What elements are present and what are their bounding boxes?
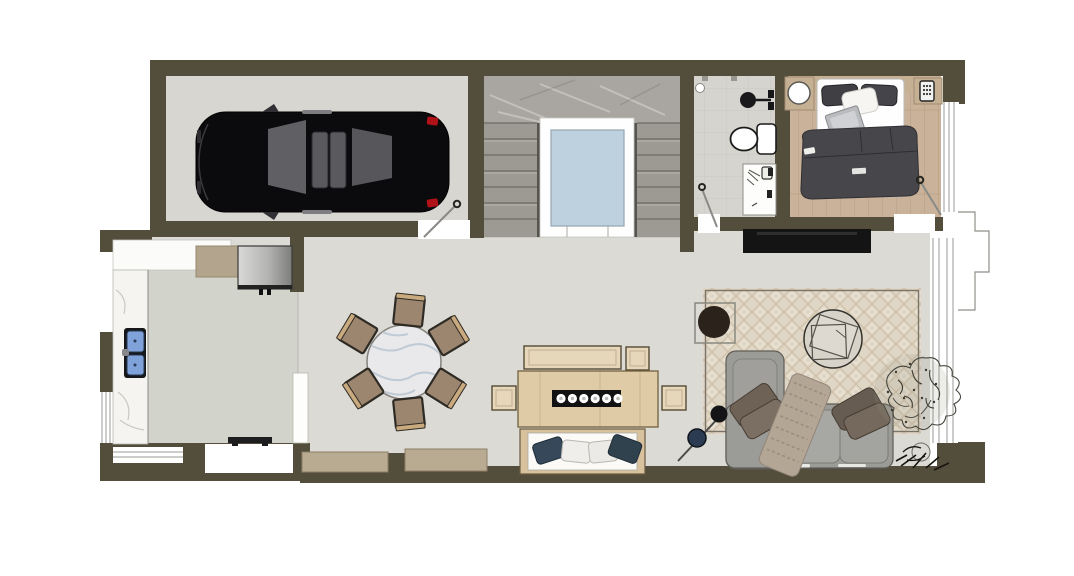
sink-faucet xyxy=(122,349,129,356)
phone-keypad-dots xyxy=(923,85,931,95)
bedroom-door-opening xyxy=(894,214,935,233)
floor-drain xyxy=(696,84,705,93)
duvet xyxy=(801,126,919,199)
bench xyxy=(524,346,621,369)
round-side-table xyxy=(788,82,810,104)
car-sunroof-right xyxy=(330,132,346,188)
sideboard-left xyxy=(302,452,388,472)
toilet-bowl xyxy=(731,128,758,151)
kitchen-left-window xyxy=(99,392,115,443)
refrigerator-front-edge xyxy=(238,285,292,289)
side-table-dark-top xyxy=(698,306,730,338)
garage xyxy=(196,104,449,220)
shower-mount-bottom xyxy=(768,102,774,110)
duvet-label xyxy=(852,168,866,175)
floor-lamp-shade-navy xyxy=(688,429,706,447)
wall-top-right-block xyxy=(943,60,965,104)
side-chair-top-right xyxy=(626,347,649,370)
car-headlight-bottom xyxy=(197,181,201,194)
left-stair-flight xyxy=(484,123,537,237)
car-windshield xyxy=(268,120,306,194)
wall-bottom-right-block xyxy=(937,442,985,483)
half-wall xyxy=(293,373,308,443)
car-door-chrome-bottom xyxy=(302,210,332,214)
toilet-tank xyxy=(757,124,776,154)
vanity-fitting xyxy=(767,190,772,198)
car-taillight-bottom xyxy=(426,198,438,207)
vanity-faucet xyxy=(768,168,773,176)
tv-screen-edge xyxy=(757,232,857,235)
wall-hall-left xyxy=(468,60,484,238)
floor-plan-page xyxy=(0,0,1074,576)
car-sunroof-left xyxy=(312,132,328,188)
floor-lamp-shade-black xyxy=(711,406,728,423)
floor-plan-svg xyxy=(0,0,1074,576)
right-stair-rail xyxy=(634,123,637,237)
wood-niche xyxy=(196,246,238,277)
wall-sideboard-stub xyxy=(388,453,405,473)
shower-mount-top xyxy=(768,90,774,98)
car xyxy=(196,104,449,220)
shower-glass-clip-right xyxy=(731,76,737,81)
sofa-base-trim-2 xyxy=(838,464,866,467)
cooktop-strip xyxy=(228,437,272,443)
shower-glass-clip-left xyxy=(702,76,708,81)
kitchen-floor xyxy=(148,270,298,445)
sideboard-right xyxy=(405,449,487,471)
rain-shower-head xyxy=(740,92,756,108)
fridge-handle-1 xyxy=(259,289,263,295)
hall-door-opening xyxy=(698,214,720,233)
staircase xyxy=(484,118,690,237)
car-door-chrome-top xyxy=(302,110,332,114)
car-taillight-top xyxy=(426,116,438,125)
left-stair-rail xyxy=(537,123,540,237)
car-headlight-top xyxy=(197,130,201,143)
car-rear-glass xyxy=(352,128,392,186)
wall-top xyxy=(150,60,965,76)
refrigerator xyxy=(238,246,292,289)
skylight-void xyxy=(551,130,624,226)
fridge-handle-2 xyxy=(267,289,271,295)
bottom-left-window xyxy=(113,447,183,463)
banquette-pillow-white-1 xyxy=(561,440,592,464)
entry-opening xyxy=(205,444,293,473)
bay-window-outline xyxy=(958,212,989,310)
wall-garage-left xyxy=(150,60,166,237)
